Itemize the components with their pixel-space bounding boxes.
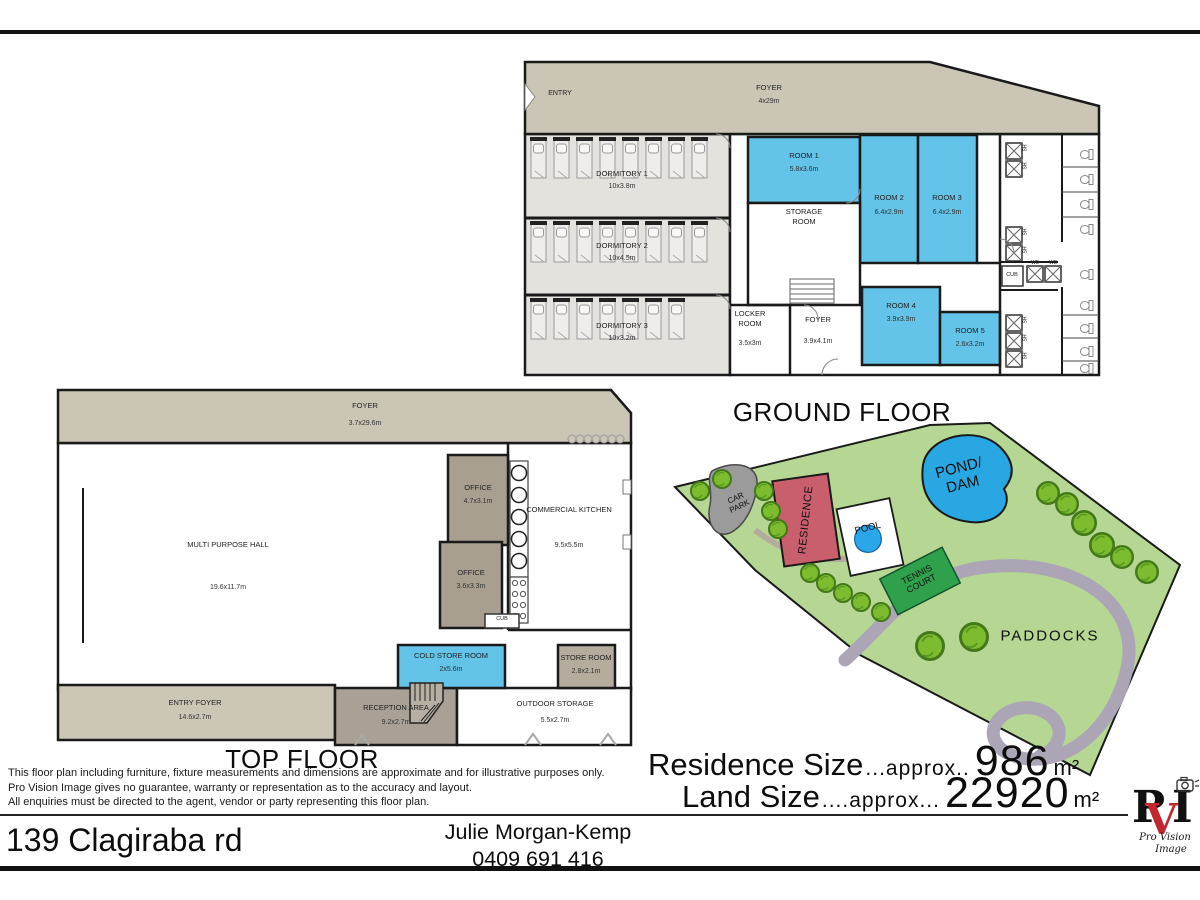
tf-store-room-label: STORE ROOM (560, 653, 611, 663)
tf-reception-dims: 9.2x2.7m (382, 718, 411, 727)
disclaimer: This floor plan including furniture, fix… (8, 766, 605, 810)
footer-top-line (0, 814, 1128, 816)
tf-reception-label: RECEPTION AREA (363, 703, 429, 713)
property-address: 139 Clagiraba rd (6, 822, 243, 859)
gf-dormitory-2-dims: 10x4.5m (609, 254, 636, 263)
tf-main-block (58, 443, 631, 690)
gf-room-2-dims: 6.4x2.9m (875, 208, 904, 217)
land-size-label: Land Size (682, 779, 820, 815)
gf-shower-label: SH (1023, 335, 1030, 342)
logo-text-top: Pro Vision (1130, 832, 1200, 843)
gf-inner-foyer-dims: 3.9x4.1m (804, 337, 833, 346)
footer-bottom-line (0, 866, 1200, 871)
site-plan: CAR PARK RESIDENCE POOL POND/ DAM TENNIS… (660, 415, 1190, 785)
tf-office-1-label: OFFICE (464, 483, 492, 493)
site-plan-drawing (660, 415, 1190, 785)
top-divider-line (0, 30, 1200, 34)
tf-office-2-label: OFFICE (457, 568, 485, 578)
tf-foyer-dims: 3.7x29.6m (349, 419, 382, 428)
gf-shower-label: SH (1023, 145, 1030, 152)
gf-room-3-label: ROOM 3 (932, 193, 962, 203)
tf-kitchen-label: COMMERCIAL KITCHEN (524, 505, 614, 515)
tf-foyer-label: FOYER (352, 401, 378, 411)
gf-room-1-dims: 5.8x3.6m (790, 165, 819, 174)
gf-foyer-dims: 4x29m (758, 97, 779, 106)
logo-text-bottom: Image (1136, 844, 1200, 855)
gf-dormitory-1-label: DORMITORY 1 (596, 169, 648, 179)
tf-cold-store-label: COLD STORE ROOM (414, 651, 488, 661)
gf-room-5-label: ROOM 5 (955, 326, 985, 336)
camera-icon (1176, 775, 1200, 792)
gf-room-5 (940, 312, 1000, 365)
gf-room-4-dims: 3.9x3.9m (887, 315, 916, 324)
gf-shower-label: SH (1023, 353, 1030, 360)
tf-cub-label: CUB (496, 616, 508, 623)
gf-dormitory-1-dims: 10x3.8m (609, 182, 636, 191)
tf-cold-store-dims: 2x5.6m (440, 665, 463, 674)
land-size-value: 22920 (945, 769, 1070, 818)
gf-storage-room-label: STORAGE ROOM (774, 207, 834, 227)
ground-floor-plan: ENTRY FOYER 4x29m DORMITORY 1 10x3.8m DO… (522, 57, 1102, 378)
gf-foyer-label: FOYER (756, 83, 782, 93)
disclaimer-line-1: This floor plan including furniture, fix… (8, 766, 605, 781)
agent-name: Julie Morgan-Kemp (388, 819, 688, 846)
disclaimer-line-3: All enquiries must be directed to the ag… (8, 795, 605, 810)
pro-vision-image-logo: P V I Pro Vision Image (1130, 778, 1200, 868)
gf-shower-label: SH (1023, 163, 1030, 170)
gf-locker-room-label: LOCKER ROOM (727, 309, 773, 329)
gf-shower-label: SH (1023, 247, 1030, 254)
gf-foyer-band (525, 62, 1099, 134)
land-size-row: Land Size ....approx... 22920 m² (682, 769, 1099, 818)
tf-hall-label: MULTI PURPOSE HALL (178, 540, 278, 550)
top-floor-plan: FOYER 3.7x29.6m MULTI PURPOSE HALL 19.6x… (55, 385, 640, 753)
gf-basin-label: WB (1031, 260, 1039, 267)
tf-entry-foyer-label: ENTRY FOYER (168, 698, 221, 708)
tf-outdoor-storage-label: OUTDOOR STORAGE (517, 699, 594, 709)
tf-kitchen-dims: 9.5x5.5m (555, 541, 584, 550)
tf-office-2-dims: 3.6x3.3m (457, 582, 486, 591)
gf-inner-foyer-label: FOYER (805, 315, 831, 325)
land-size-unit: m² (1074, 787, 1100, 813)
tf-foyer-band (58, 390, 631, 443)
agent-details: Julie Morgan-Kemp 0409 691 416 (388, 819, 688, 873)
top-floor-drawing (55, 385, 640, 753)
gf-dormitory-3-label: DORMITORY 3 (596, 321, 648, 331)
gf-room-4 (862, 287, 940, 365)
gf-dormitory-2-label: DORMITORY 2 (596, 241, 648, 251)
tf-hall-dims: 19.6x11.7m (210, 583, 246, 592)
gf-dormitory-3-dims: 10x3.2m (609, 334, 636, 343)
gf-locker-room-dims: 3.5x3m (739, 339, 762, 348)
tf-office-1-dims: 4.7x3.1m (464, 497, 493, 506)
gf-room-3-dims: 6.4x2.9m (933, 208, 962, 217)
ground-floor-title: GROUND FLOOR (692, 397, 992, 428)
disclaimer-line-2: Pro Vision Image gives no guarantee, war… (8, 781, 605, 796)
gf-shower-label: SH (1023, 229, 1030, 236)
gf-cub-label: CUB (1006, 272, 1018, 279)
floor-plan-page: ENTRY FOYER 4x29m DORMITORY 1 10x3.8m DO… (0, 0, 1200, 900)
tf-store-room-dims: 2.8x2.1m (572, 667, 601, 676)
tf-outdoor-storage-dims: 5.5x2.7m (541, 716, 570, 725)
land-size-approx: ....approx... (822, 789, 940, 813)
gf-room-4-label: ROOM 4 (886, 301, 916, 311)
gf-basin-label: WB (1049, 260, 1057, 267)
gf-room-5-dims: 2.6x3.2m (956, 340, 985, 349)
gf-room-1-label: ROOM 1 (789, 151, 819, 161)
gf-entry-label: ENTRY (548, 89, 572, 98)
paddocks-label: PADDOCKS (1000, 629, 1099, 646)
tf-entry-foyer-dims: 14.6x2.7m (179, 713, 212, 722)
gf-room-2-label: ROOM 2 (874, 193, 904, 203)
gf-shower-label: SH (1023, 317, 1030, 324)
